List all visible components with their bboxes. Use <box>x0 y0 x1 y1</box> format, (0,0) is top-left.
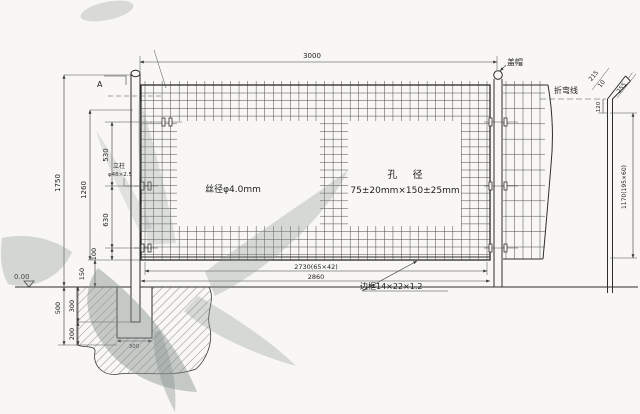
bend-arm-tip <box>628 73 633 79</box>
foundation-hatch <box>77 287 211 374</box>
dim-bottom-widths: 2730(65×42) 2860 <box>141 262 490 281</box>
dim-bottom-gap-text: 150 <box>78 268 86 280</box>
dim-middle-segment-text: 630 <box>102 213 110 226</box>
mesh-horizontal-wires <box>141 93 490 255</box>
ground: 0.00 <box>14 273 638 287</box>
aperture-title-label: 孔 径 <box>387 168 428 181</box>
dim-embed-lower-text: 200 <box>68 328 76 340</box>
dim-pit-width-text: 300 <box>129 344 140 350</box>
section-a-label: A <box>97 80 103 89</box>
post-spec-label: φ48×2.5 <box>108 172 132 178</box>
mesh-clamps <box>134 118 518 252</box>
left-post-cap <box>131 70 140 76</box>
continuation-wires <box>503 81 545 259</box>
dim-overall-width: 3000 <box>140 52 497 74</box>
dim-side-height-text: 1170(195×60) <box>621 165 628 209</box>
dim-bend-length-text: 215 <box>588 69 601 82</box>
level-symbol-icon <box>24 281 34 287</box>
dim-bend-offset-text: 10 <box>597 79 607 89</box>
continuation-break-edge <box>543 85 552 259</box>
dim-overall-height-text: 1750 <box>54 174 62 192</box>
ground-level-label: 0.00 <box>14 273 30 281</box>
wire-diameter-label: 丝径φ4.0mm <box>205 183 261 195</box>
right-post-cap <box>494 71 503 80</box>
post-title-label: 立柱 <box>113 162 125 170</box>
leader-line <box>154 50 166 88</box>
watermark-blob-left <box>1 236 72 286</box>
fence-installation-drawing: 0.00 A 立柱 φ48×2.5 丝径φ4.0mm <box>0 0 640 414</box>
dim-bend-arm-text: 255 <box>616 81 629 94</box>
bend-line-label: 折弯线 <box>554 85 578 95</box>
cap-label: 盖帽 <box>507 57 523 67</box>
mesh-panel <box>141 81 490 260</box>
side-view: 折弯线 215 10 255 120 1170(195×60) <box>540 68 637 293</box>
panel-frame <box>141 85 490 260</box>
right-post <box>494 71 503 287</box>
dim-embed-upper-text: 300 <box>68 300 76 312</box>
left-post-body <box>131 73 140 322</box>
mesh-vertical-wires <box>145 81 487 260</box>
dim-bend-drop-text: 120 <box>596 101 602 112</box>
dim-upper-segment-text: 530 <box>102 148 110 161</box>
drawing-sheet: 0.00 A 立柱 φ48×2.5 丝径φ4.0mm <box>0 0 640 414</box>
watermark-smudge <box>79 0 136 25</box>
left-post <box>108 70 162 322</box>
dim-foundation-depth-text: 500 <box>54 302 62 314</box>
dim-overall-width-text: 3000 <box>303 52 321 60</box>
aperture-spec-label: 75±20mm×150±25mm <box>350 186 459 196</box>
cap-callout: 盖帽 <box>500 57 523 71</box>
dim-mesh-height-text: 1260 <box>80 181 88 199</box>
section-a-bracket <box>104 76 126 85</box>
dim-panel-width-text: 2860 <box>308 273 325 281</box>
mesh-continuation <box>503 81 552 259</box>
dim-lower-segment-text: 100 <box>90 248 98 260</box>
dim-mesh-width-text: 2730(65×42) <box>294 263 338 271</box>
foundation-section <box>77 287 211 374</box>
frame-spec-label: 边框14×22×1.2 <box>360 281 423 291</box>
